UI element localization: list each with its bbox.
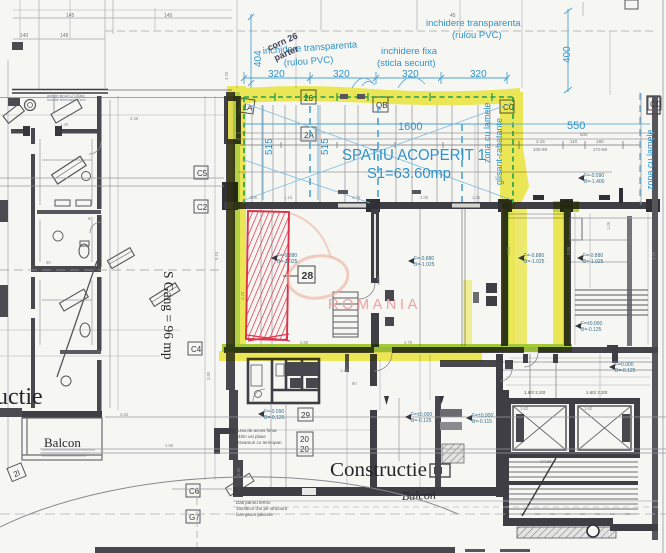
svg-text:90: 90 [352, 381, 357, 386]
svg-text:1.85: 1.85 [165, 443, 174, 448]
svg-text:ROMANIA: ROMANIA [328, 297, 421, 313]
svg-text:3.80: 3.80 [206, 371, 211, 380]
svg-text:400: 400 [562, 46, 573, 63]
svg-text:2.86: 2.86 [300, 340, 309, 345]
svg-text:SPATIU ACOPERIT 1: SPATIU ACOPERIT 1 [342, 147, 486, 164]
svg-text:B=-0.125: B=-0.125 [615, 368, 636, 374]
svg-text:3.55: 3.55 [566, 246, 571, 255]
svg-text:205-88: 205-88 [533, 147, 548, 152]
svg-text:515: 515 [320, 138, 331, 155]
svg-text:17x28: 17x28 [540, 459, 552, 464]
svg-text:1.10: 1.10 [284, 195, 293, 200]
svg-text:B=-0.125: B=-0.125 [411, 418, 432, 424]
svg-text:1.45: 1.45 [472, 195, 481, 200]
svg-text:148: 148 [60, 33, 69, 39]
svg-text:(rulou PVC): (rulou PVC) [452, 30, 502, 41]
svg-text:2.16: 2.16 [536, 139, 545, 144]
svg-text:205: 205 [250, 195, 258, 200]
svg-text:B=-1.025: B=-1.025 [277, 259, 298, 265]
svg-text:110: 110 [570, 139, 578, 144]
svg-text:1.20: 1.20 [340, 368, 349, 373]
svg-text:uctie: uctie [0, 384, 43, 410]
svg-text:3.55: 3.55 [506, 246, 511, 255]
svg-text:60: 60 [88, 216, 93, 221]
svg-text:320: 320 [470, 69, 487, 80]
svg-text:4.75: 4.75 [352, 195, 361, 200]
svg-text:3.60: 3.60 [651, 251, 656, 260]
svg-text:320: 320 [402, 69, 419, 80]
svg-text:inchidere transparenta: inchidere transparenta [426, 18, 521, 29]
svg-text:Dati panou termo: Dati panou termo [236, 500, 271, 505]
svg-text:320: 320 [268, 69, 285, 80]
svg-text:515: 515 [264, 138, 275, 155]
svg-text:29: 29 [301, 411, 310, 420]
svg-text:180: 180 [596, 139, 604, 144]
svg-text:550: 550 [567, 120, 585, 132]
svg-text:Constructie: Constructie [330, 459, 427, 481]
svg-text:1.60/ 2.20t: 1.60/ 2.20t [586, 390, 608, 395]
svg-text:izolatie termosist 10cm: izolatie termosist 10cm [47, 98, 86, 102]
svg-text:140: 140 [20, 33, 29, 39]
svg-text:Usa de acces firma: Usa de acces firma [238, 428, 277, 433]
svg-text:320: 320 [333, 69, 350, 80]
svg-text:90: 90 [46, 260, 51, 265]
svg-text:1600: 1600 [398, 121, 422, 133]
svg-text:Geamuri cu termopan: Geamuri cu termopan [238, 440, 282, 445]
svg-text:B=-1.400: B=-1.400 [584, 179, 605, 185]
svg-text:B=-1.025: B=-1.025 [524, 259, 545, 265]
svg-text:1.62: 1.62 [584, 406, 593, 411]
svg-text:zona cu lamele: zona cu lamele [645, 129, 655, 190]
svg-text:1.40: 1.40 [60, 122, 69, 127]
svg-text:C4: C4 [191, 345, 202, 354]
svg-text:2.62: 2.62 [120, 412, 129, 417]
svg-text:B=-1.025: B=-1.025 [414, 262, 435, 268]
svg-text:404: 404 [253, 50, 264, 67]
svg-text:B=-0.115: B=-0.115 [472, 419, 492, 425]
svg-text:(sticla securit): (sticla securit) [377, 58, 436, 69]
svg-text:500: 500 [580, 132, 588, 137]
svg-text:B=-0.125: B=-0.125 [264, 415, 285, 421]
svg-text:inchidere fixa: inchidere fixa [381, 46, 438, 57]
svg-text:Balcon: Balcon [44, 435, 81, 450]
svg-text:C2: C2 [197, 203, 208, 212]
svg-text:4.20: 4.20 [240, 291, 245, 300]
svg-text:4.75: 4.75 [404, 340, 413, 345]
svg-text:18x35cm izol pe structura: 18x35cm izol pe structura [236, 506, 288, 511]
svg-text:S Gang = 96 mp: S Gang = 96 mp [161, 271, 176, 360]
svg-text:1.05: 1.05 [606, 221, 611, 230]
svg-text:145: 145 [164, 13, 173, 19]
svg-text:C5: C5 [197, 169, 208, 178]
svg-text:B=-0.125: B=-0.125 [581, 327, 602, 333]
svg-text:3.20: 3.20 [224, 71, 229, 80]
svg-text:40m usi plase: 40m usi plase [238, 434, 266, 439]
svg-text:4.08: 4.08 [376, 276, 381, 285]
svg-text:2.45: 2.45 [130, 116, 139, 121]
svg-text:CD: CD [650, 100, 662, 109]
svg-text:fara geam jaluzele: fara geam jaluzele [236, 512, 273, 517]
svg-text:1.62: 1.62 [520, 406, 529, 411]
svg-text:S1=63.60mp: S1=63.60mp [367, 166, 451, 182]
svg-text:B=-1.025: B=-1.025 [583, 259, 604, 265]
svg-text:145: 145 [66, 13, 75, 19]
svg-text:zona cu lamele: zona cu lamele [482, 102, 492, 163]
svg-text:2.05: 2.05 [420, 195, 429, 200]
svg-text:3.95: 3.95 [236, 467, 241, 476]
svg-text:glisant-rabatante: glisant-rabatante [494, 118, 504, 185]
svg-text:C6: C6 [189, 487, 200, 496]
svg-text:28: 28 [302, 270, 314, 282]
svg-text:1.60/ 2.20t: 1.60/ 2.20t [524, 390, 546, 395]
svg-text:20: 20 [300, 435, 309, 444]
svg-text:270-88: 270-88 [593, 147, 608, 152]
svg-text:5.15: 5.15 [214, 251, 219, 260]
